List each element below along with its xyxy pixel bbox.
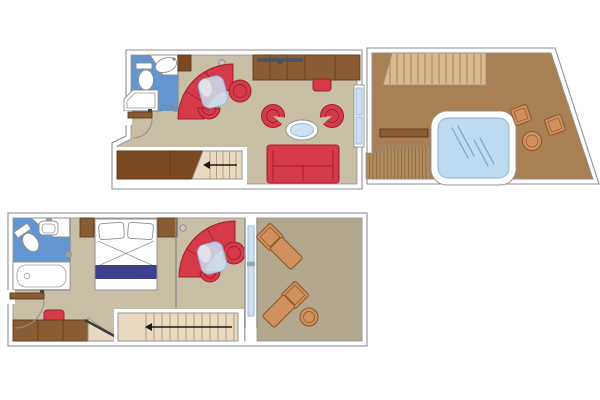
balcony-window bbox=[248, 226, 254, 262]
floorplan-canvas bbox=[0, 0, 600, 400]
sideboard bbox=[253, 55, 360, 80]
lower-staircase bbox=[114, 309, 244, 344]
bathroom-door-icon bbox=[169, 106, 174, 110]
toilet-tank bbox=[136, 63, 152, 69]
under-stair-wardrobe bbox=[117, 151, 203, 179]
tv-icon bbox=[257, 58, 303, 62]
toilet bbox=[139, 70, 154, 90]
bathroom-door-icon bbox=[66, 252, 72, 257]
faucet-icon bbox=[172, 57, 175, 60]
door-leaf bbox=[10, 293, 44, 299]
armchair bbox=[229, 80, 251, 102]
wardrobe-column bbox=[178, 55, 191, 71]
duplex-suite-floorplan bbox=[0, 0, 600, 400]
deck-round-table bbox=[523, 132, 542, 151]
door-leaf bbox=[128, 112, 152, 118]
terrace-sliding-door bbox=[354, 85, 364, 147]
desk-cabinet bbox=[13, 320, 88, 341]
faucet-icon bbox=[46, 218, 52, 221]
door-handle-icon bbox=[40, 290, 44, 293]
terrace-plank-steps bbox=[383, 53, 486, 85]
ceiling-light-icon bbox=[180, 225, 186, 231]
terrace-bench bbox=[380, 129, 428, 137]
stool bbox=[313, 79, 331, 91]
balcony-sliding-door bbox=[248, 266, 254, 316]
window-handle-icon bbox=[247, 262, 255, 266]
pillow bbox=[127, 222, 153, 240]
upper-bathroom bbox=[124, 55, 179, 111]
pillow bbox=[98, 222, 124, 240]
door-handle-icon bbox=[148, 109, 152, 112]
terrace bbox=[366, 48, 599, 185]
lower-level bbox=[7, 213, 367, 346]
balcony-round-table bbox=[300, 308, 318, 326]
bed-runner bbox=[95, 265, 157, 279]
nightstand-left bbox=[80, 218, 94, 237]
whirlpool bbox=[431, 111, 516, 185]
lower-bathroom bbox=[13, 218, 72, 290]
upper-level bbox=[112, 50, 364, 189]
upper-staircase bbox=[114, 147, 247, 186]
nightstand-right bbox=[158, 218, 177, 237]
